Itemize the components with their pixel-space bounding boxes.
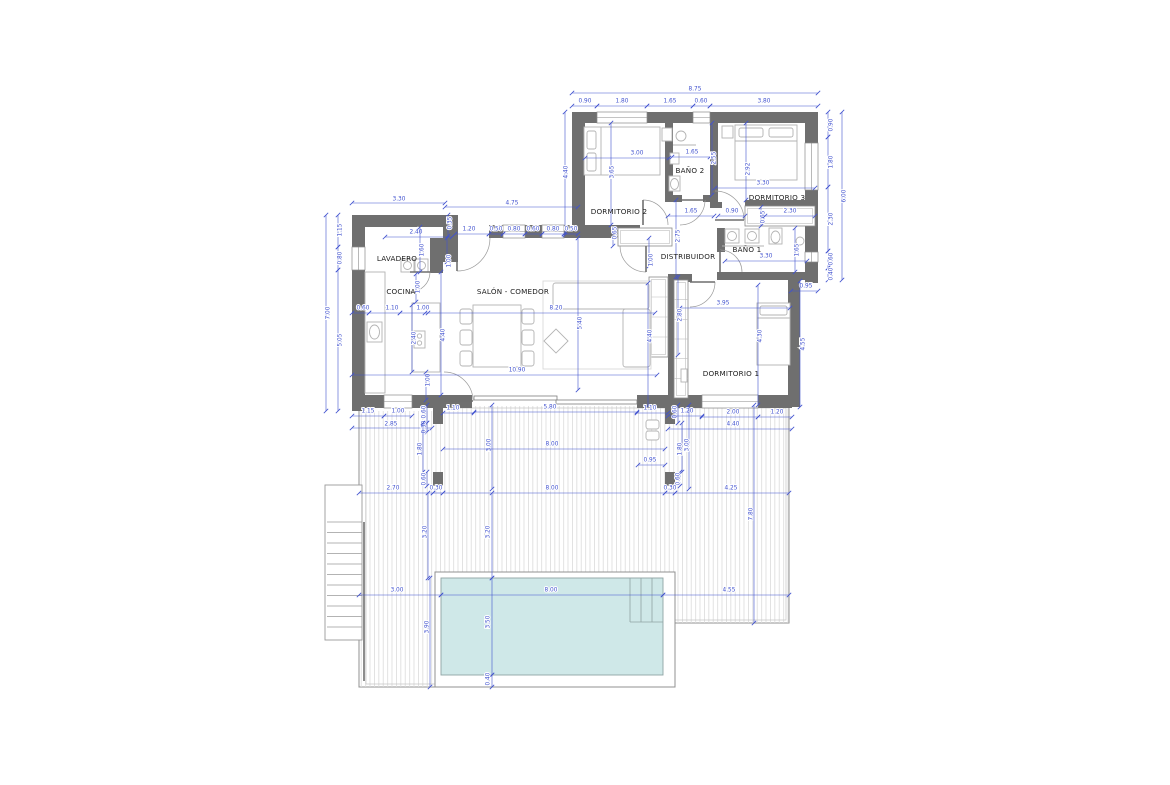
dim-label: 8.00: [545, 588, 558, 594]
wall: [717, 228, 725, 252]
dim-label: 1.80: [418, 442, 424, 455]
dim-label: 8.00: [546, 442, 559, 448]
dim-label: 3.65: [610, 165, 616, 178]
dim-label: 0.35: [448, 216, 454, 229]
toilet-bowl: [771, 231, 780, 243]
dim-label: 1.15: [338, 223, 344, 236]
wall: [703, 195, 710, 202]
dim-label: 0.65: [761, 210, 767, 223]
dim-label: 4.40: [648, 329, 654, 342]
exterior-stairs: [325, 485, 362, 640]
wall: [433, 472, 443, 486]
terrace-chair: [646, 431, 659, 440]
dim-label: 3.20: [486, 525, 492, 538]
dim-label: 3.50: [486, 615, 492, 628]
dim-label: 3.95: [717, 301, 730, 307]
room-label-distribuidor: DISTRIBUIDOR: [661, 252, 716, 261]
dim-label: 4.55: [723, 588, 736, 594]
dim-label: 0.95: [644, 458, 657, 464]
dim-label: 3.30: [393, 197, 406, 203]
dim-label: 0.60: [676, 472, 682, 485]
dim-label: 1.65: [664, 99, 677, 105]
bidet: [670, 153, 679, 164]
dim-label: 3.20: [423, 525, 429, 538]
wall: [665, 472, 675, 486]
room-label-bano-2: BAÑO 2: [676, 166, 705, 175]
dim-label: 2.00: [727, 410, 740, 416]
sliding-door-panel: [556, 400, 637, 404]
dim-label: 5.05: [338, 333, 344, 346]
dim-label: 3.90: [425, 620, 431, 633]
dim-label: 1.20: [463, 227, 476, 233]
chair: [460, 351, 472, 366]
dim-label: 0.40: [486, 672, 492, 685]
dryer-door: [418, 262, 426, 270]
dim-label: 5.40: [578, 316, 584, 329]
dim-label: 2.70: [387, 486, 400, 492]
dim-label: 7.80: [749, 507, 755, 520]
dim-label: 0.80: [338, 251, 344, 264]
dim-label: 2.55: [712, 151, 718, 164]
burner: [417, 334, 421, 338]
dim-label: 1.00: [416, 280, 422, 293]
sofa-right: [623, 309, 650, 367]
dim-label: 1.15: [362, 409, 375, 415]
dim-label: 4.75: [506, 201, 519, 207]
dim-label: 4.30: [758, 329, 764, 342]
dim-label: 8.75: [689, 87, 702, 93]
dim-label: 6.00: [842, 189, 848, 202]
sliding-door-panel: [474, 396, 557, 400]
chair: [522, 330, 534, 345]
chair: [460, 309, 472, 324]
basin: [748, 232, 757, 241]
room-label-dormitorio-3: DORMITORIO 3: [749, 193, 806, 202]
dim-label: 1.65: [686, 150, 699, 156]
dim-label: 0.30: [430, 486, 443, 492]
dim-label: 0.60: [695, 99, 708, 105]
dim-label: 2.75: [676, 229, 682, 242]
chair: [522, 351, 534, 366]
dim-label: 2.85: [385, 422, 398, 428]
room-label-salon-comedor: SALÓN - COMEDOR: [477, 287, 549, 296]
dim-label: 0.40: [829, 267, 835, 280]
dim-label: 0.80: [547, 227, 560, 233]
wall: [572, 123, 585, 238]
dim-label: 3.30: [760, 254, 773, 260]
dim-label: 1.20: [681, 409, 694, 415]
dim-label: 2.80: [678, 308, 684, 321]
dim-label: 0.60: [527, 227, 540, 233]
dim-label: 2.92: [746, 162, 752, 175]
floor-plan-svg: 8.750.901.801.650.603.800.901.802.300.60…: [0, 0, 1170, 785]
sink-basin: [370, 325, 380, 339]
dim-label: 1.80: [678, 442, 684, 455]
dim-label: 7.00: [326, 306, 332, 319]
dim-label: 1.10: [644, 406, 657, 412]
bath2-sink: [676, 131, 686, 141]
room-label-dormitorio-1: DORMITORIO 1: [703, 369, 760, 378]
dim-label: 2.30: [784, 209, 797, 215]
wall: [352, 215, 445, 227]
dim-label: 0.30: [664, 486, 677, 492]
dim-label: 0.60: [829, 252, 835, 265]
dim-label: 0.60: [673, 405, 679, 418]
nightstand: [722, 126, 733, 138]
room-label-bano-1: BAÑO 1: [733, 245, 762, 254]
dim-label: 3.00: [391, 588, 404, 594]
dim-label: 1.20: [771, 410, 784, 416]
dim-label: 1.10: [447, 406, 460, 412]
burner: [417, 341, 421, 345]
dim-label: 1.00: [392, 409, 405, 415]
dining-table: [473, 305, 521, 367]
dim-label: 1.80: [829, 155, 835, 168]
dim-label: 3.30: [757, 181, 770, 187]
dim-label: 0.90: [579, 99, 592, 105]
dim-label: 0.50: [565, 227, 578, 233]
dim-label: 2.40: [410, 230, 423, 236]
dim-label: 5.80: [544, 405, 557, 411]
room-label-cocina: COCINA: [386, 287, 415, 296]
toilet-bowl: [671, 179, 679, 190]
tv-unit: [681, 369, 687, 382]
wall: [665, 195, 682, 202]
wall: [717, 272, 818, 280]
dim-label: 1.10: [386, 306, 399, 312]
dim-label: 2.40: [412, 331, 418, 344]
chair: [460, 330, 472, 345]
wall: [433, 408, 443, 424]
nightstand: [662, 128, 672, 141]
dim-label: 0.50: [490, 227, 503, 233]
dim-label: 0.95: [800, 284, 813, 290]
dim-label: 4.55: [801, 337, 807, 350]
wall: [430, 238, 443, 273]
dim-label: 0.60: [357, 306, 370, 312]
dim-label: 1.65: [795, 243, 801, 256]
dim-label: 0.80: [508, 227, 521, 233]
dim-label: 0.60: [422, 472, 428, 485]
terrace-chair: [646, 420, 659, 429]
dim-label: 1.00: [649, 253, 655, 266]
dimension: 0.60: [676, 470, 683, 488]
dim-label: 1.00: [447, 254, 453, 267]
sofa-top: [553, 283, 649, 309]
dim-label: 4.40: [727, 422, 740, 428]
dim-label: 1.60: [420, 243, 426, 256]
dim-label: 2.30: [829, 212, 835, 225]
bed-dormitorio-2: [584, 127, 660, 175]
dim-label: 10.90: [509, 368, 526, 374]
wall: [710, 202, 722, 208]
dim-label: 0.90: [829, 118, 835, 131]
room-label-lavadero: LAVADERO: [377, 254, 417, 263]
dim-label: 0.60: [422, 405, 428, 418]
dim-label: 0.65: [613, 226, 619, 239]
dim-label: 4.25: [725, 486, 738, 492]
dim-label: 8.20: [550, 306, 563, 312]
dim-label: 1.80: [616, 99, 629, 105]
basin: [728, 232, 737, 241]
dim-label: 0.90: [726, 209, 739, 215]
room-label-dormitorio-2: DORMITORIO 2: [591, 207, 648, 216]
dim-label: 1.65: [685, 209, 698, 215]
bed-dormitorio-3: [735, 125, 797, 180]
dim-label: 3.00: [685, 438, 691, 451]
dim-label: 3.00: [487, 438, 493, 451]
chair: [522, 309, 534, 324]
dim-label: 0.30: [422, 420, 428, 433]
floor-plan: 8.750.901.801.650.603.800.901.802.300.60…: [0, 0, 1170, 785]
dim-label: 3.00: [631, 151, 644, 157]
dim-label: 3.80: [758, 99, 771, 105]
dim-label: 1.00: [417, 306, 430, 312]
dim-label: 4.40: [564, 165, 570, 178]
dim-label: 8.00: [546, 486, 559, 492]
dim-label: 4.40: [441, 328, 447, 341]
